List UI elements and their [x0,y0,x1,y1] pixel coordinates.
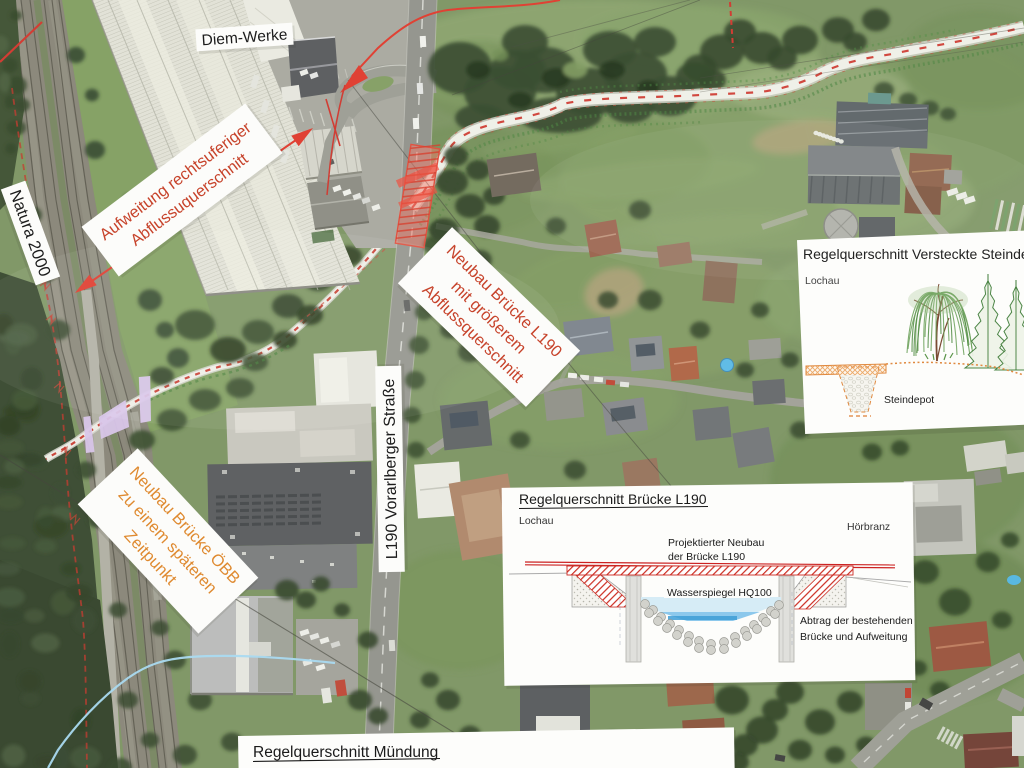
svg-text:der Brücke L190: der Brücke L190 [668,551,745,563]
svg-text:Lochau: Lochau [519,515,554,527]
svg-text:Brücke und Aufweitung: Brücke und Aufweitung [800,631,908,643]
svg-text:Hörbranz: Hörbranz [847,521,890,533]
svg-text:Wasserspiegel HQ100: Wasserspiegel HQ100 [667,587,772,599]
svg-text:L190 Vorarlberger Straße: L190 Vorarlberger Straße [381,378,401,559]
svg-text:Lochau: Lochau [805,275,840,287]
svg-text:Abtrag der bestehenden: Abtrag der bestehenden [800,615,913,627]
svg-text:Steindepot: Steindepot [884,394,934,406]
svg-text:Regelquerschnitt Versteckte St: Regelquerschnitt Versteckte Steindepot [803,246,1024,262]
svg-text:Regelquerschnitt Brücke L190: Regelquerschnitt Brücke L190 [519,491,707,507]
svg-text:Projektierter Neubau: Projektierter Neubau [668,537,764,549]
